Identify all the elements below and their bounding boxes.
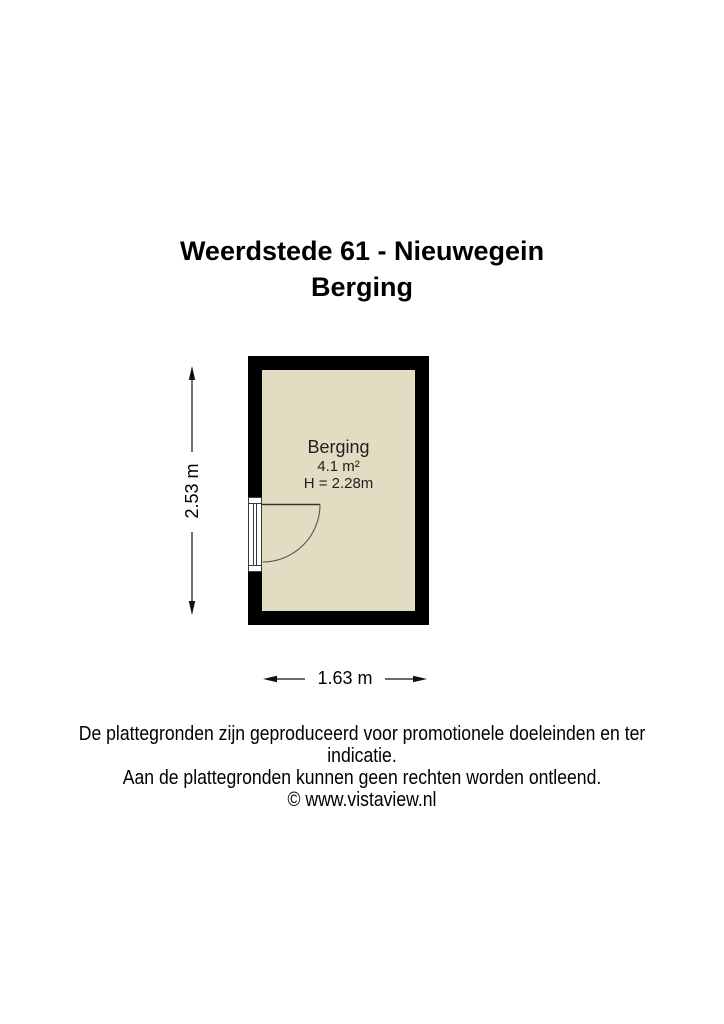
footer-disclaimer: De plattegronden zijn geproduceerd voor … <box>43 723 680 811</box>
page-title-room: Berging <box>0 269 724 305</box>
page-title: Weerdstede 61 - Nieuwegein Berging <box>0 233 724 305</box>
room-name: Berging <box>262 437 415 458</box>
disclaimer-line-2: Aan de plattegronden kunnen geen rechten… <box>43 767 680 789</box>
page-title-address: Weerdstede 61 - Nieuwegein <box>0 233 724 269</box>
arrow-up-icon <box>189 366 195 380</box>
arrow-down-icon <box>189 601 195 615</box>
height-dimension-label: 2.53 m <box>183 451 201 531</box>
room-ceiling-height: H = 2.28m <box>262 475 415 493</box>
disclaimer-line-1: De plattegronden zijn geproduceerd voor … <box>43 723 680 767</box>
floorplan-page: Weerdstede 61 - Nieuwegein Berging Bergi… <box>0 0 724 1024</box>
door-jamb <box>249 498 262 572</box>
arrow-left-icon <box>263 676 277 682</box>
arrow-right-icon <box>413 676 427 682</box>
room-area: 4.1 m² <box>262 458 415 475</box>
width-dimension-label: 1.63 m <box>305 669 385 687</box>
room-label: Berging 4.1 m² H = 2.28m <box>262 437 415 493</box>
copyright-line: © www.vistaview.nl <box>43 789 680 811</box>
